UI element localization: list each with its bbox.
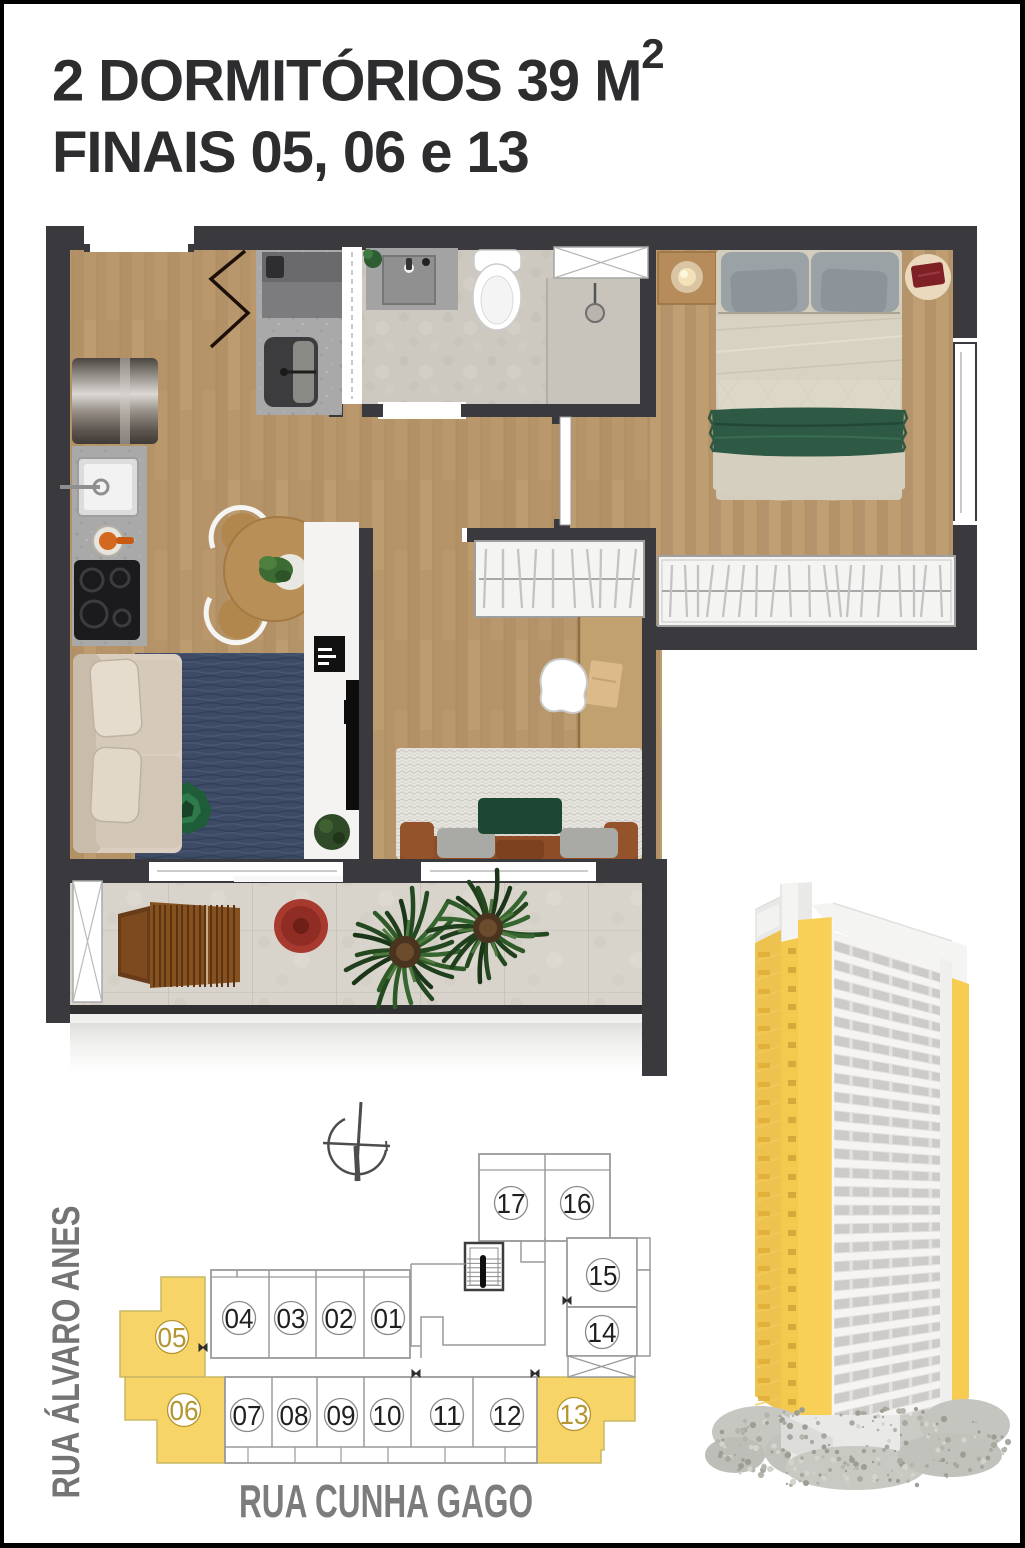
svg-text:13: 13	[560, 1399, 589, 1430]
svg-text:15: 15	[589, 1260, 618, 1291]
svg-text:10: 10	[373, 1400, 402, 1431]
svg-text:02: 02	[325, 1303, 354, 1334]
svg-text:14: 14	[588, 1317, 617, 1348]
svg-text:12: 12	[493, 1400, 522, 1431]
svg-text:05: 05	[158, 1322, 187, 1353]
svg-text:11: 11	[433, 1400, 462, 1431]
svg-text:09: 09	[327, 1400, 356, 1431]
svg-text:RUA ÁLVARO ANES: RUA ÁLVARO ANES	[44, 1206, 88, 1499]
svg-text:01: 01	[374, 1303, 403, 1334]
svg-text:RUA CUNHA GAGO: RUA CUNHA GAGO	[239, 1475, 533, 1527]
svg-text:06: 06	[170, 1395, 199, 1426]
svg-text:17: 17	[497, 1188, 526, 1219]
svg-text:03: 03	[277, 1303, 306, 1334]
svg-text:16: 16	[563, 1188, 592, 1219]
svg-text:04: 04	[225, 1303, 254, 1334]
svg-text:07: 07	[233, 1400, 262, 1431]
svg-text:08: 08	[280, 1400, 309, 1431]
